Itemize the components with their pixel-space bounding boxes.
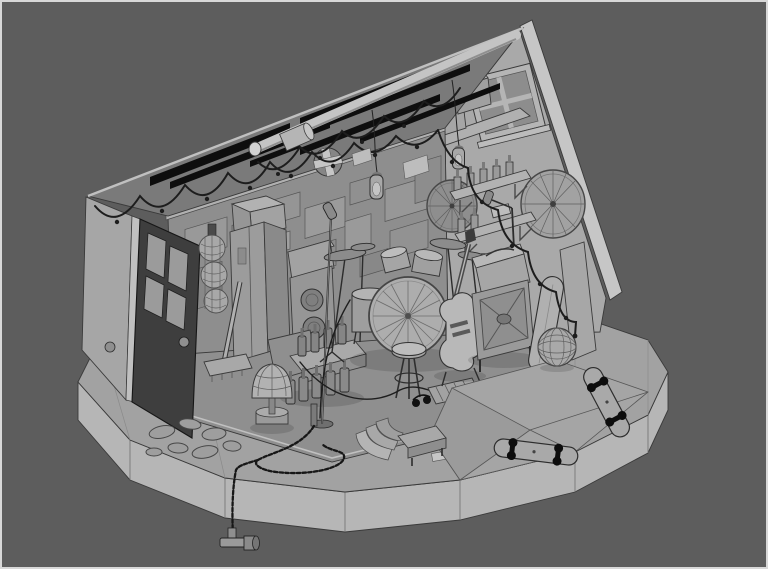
door-knob [179, 337, 189, 347]
exterior-knob [105, 342, 115, 352]
door-open [132, 219, 200, 438]
bicycle-wheel-large [521, 170, 585, 238]
render-viewport [0, 0, 768, 569]
